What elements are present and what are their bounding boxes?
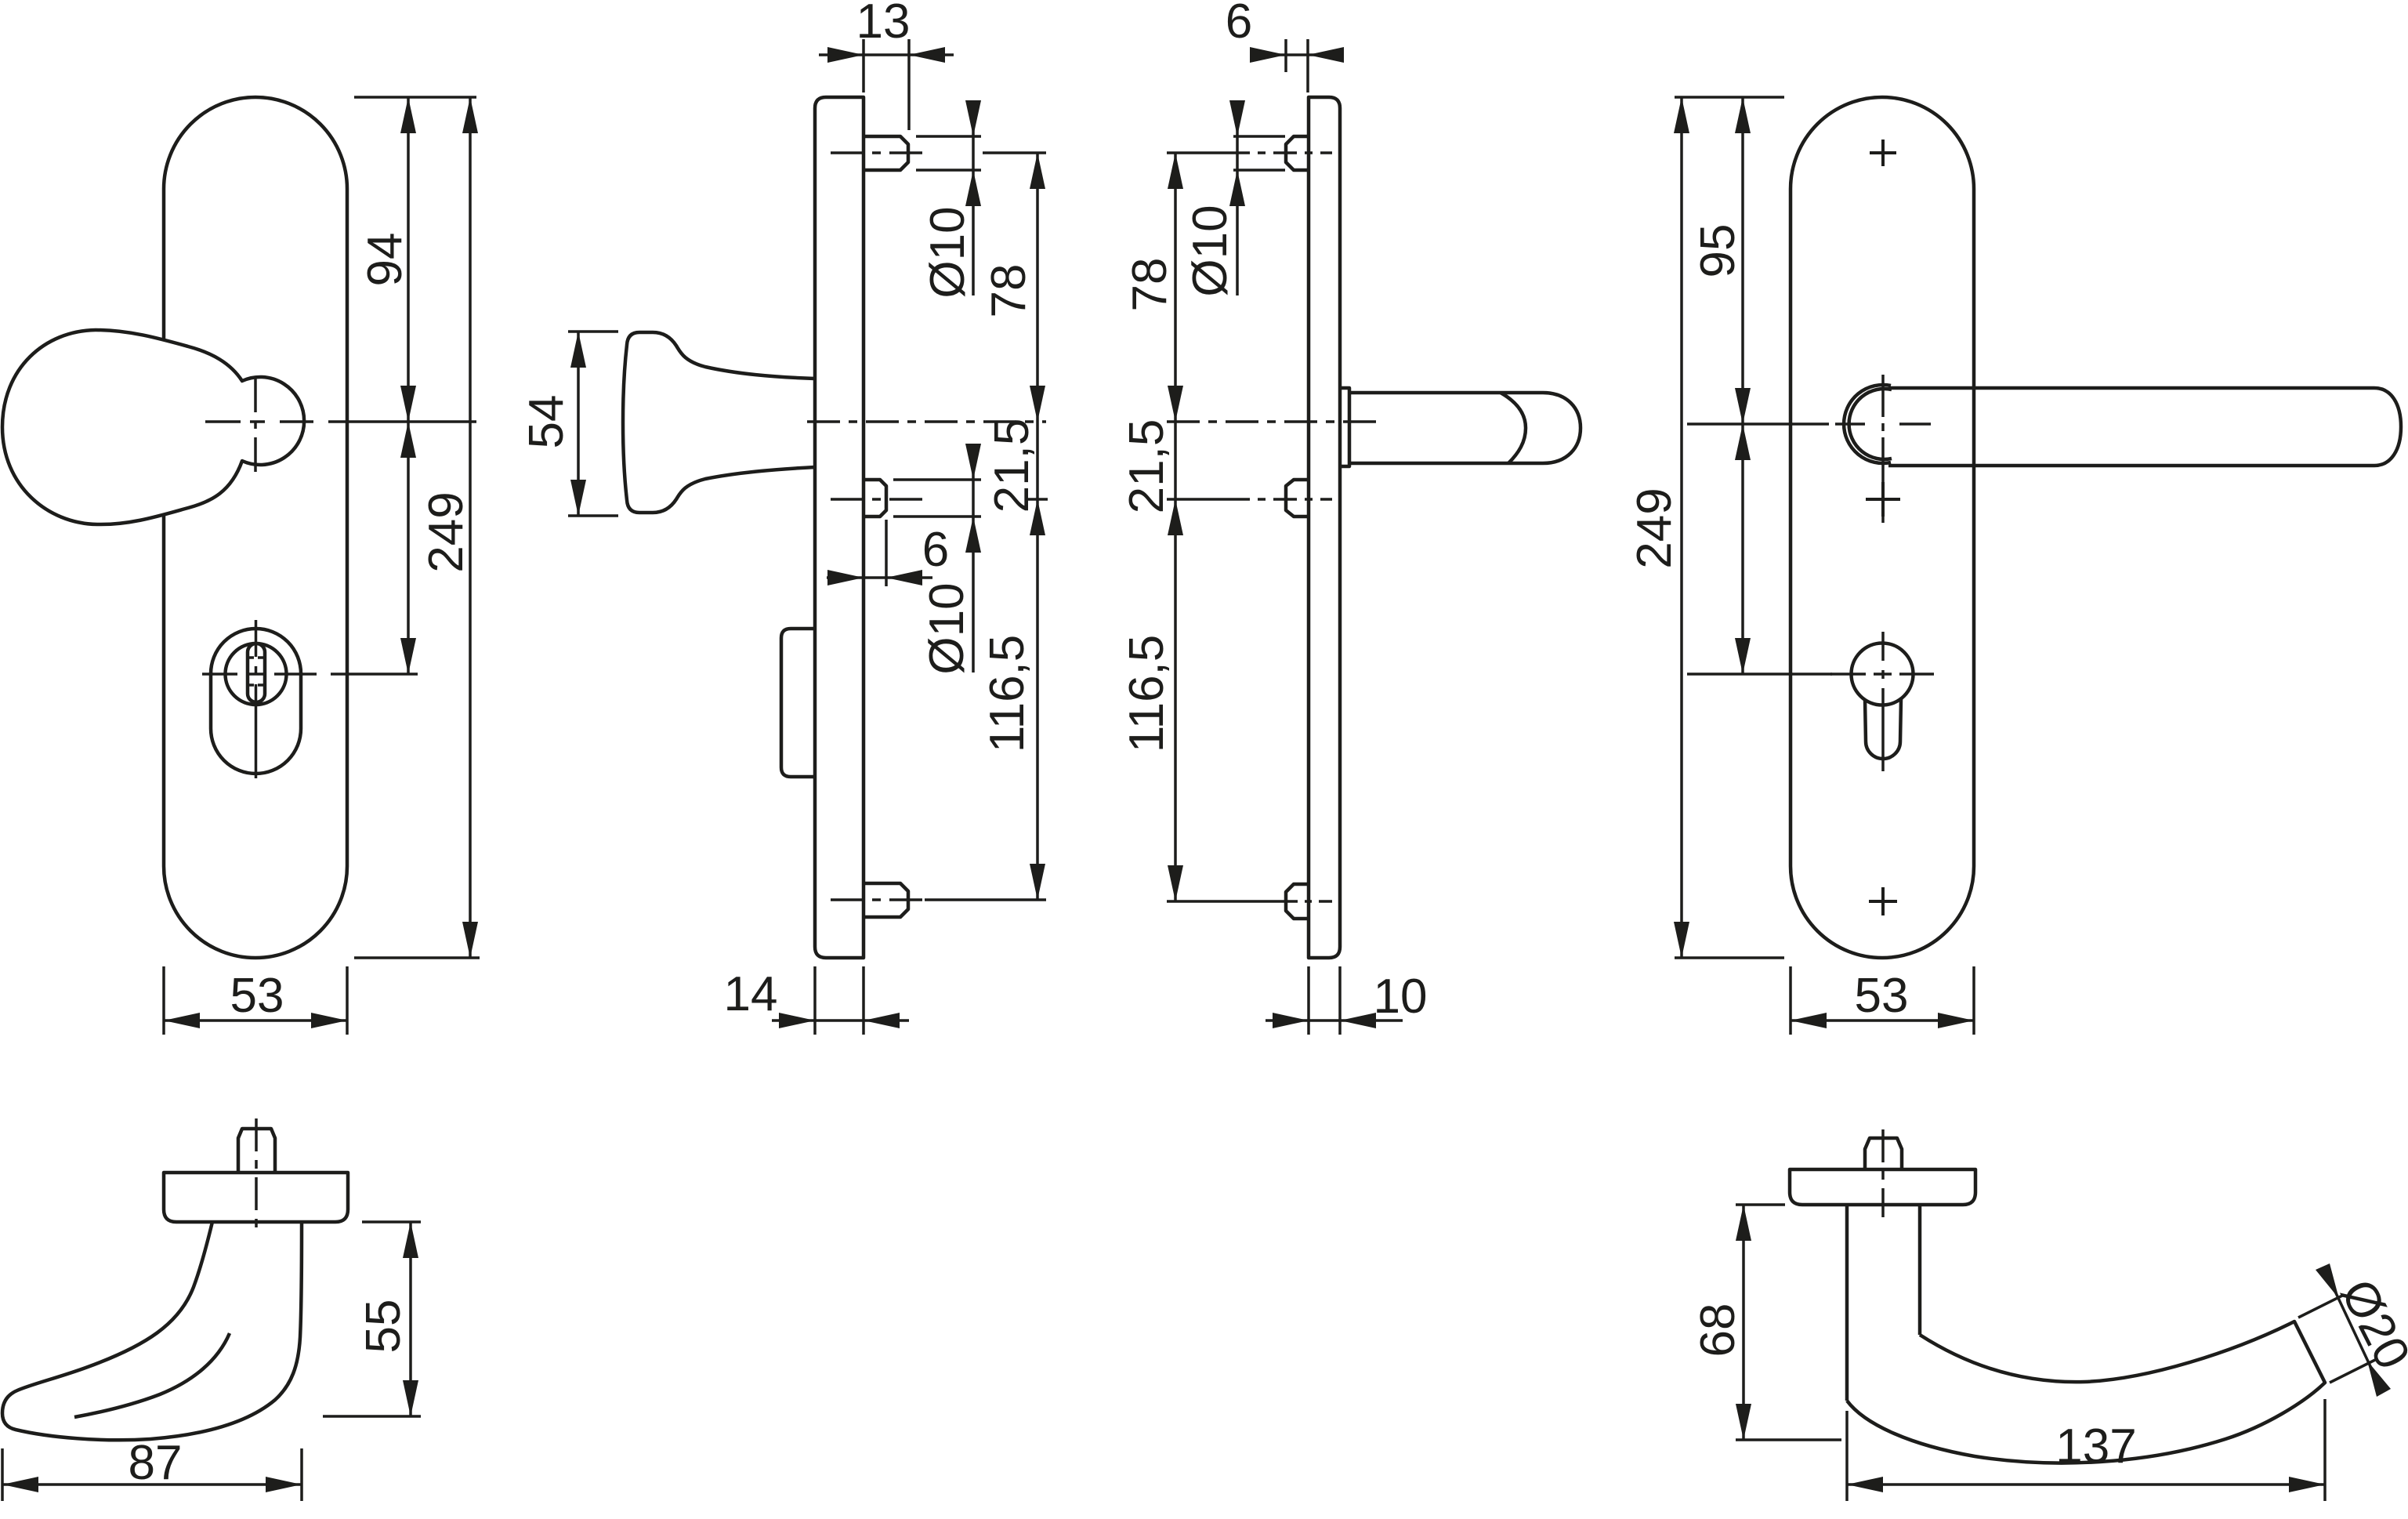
- svg-text:78: 78: [982, 264, 1036, 318]
- svg-text:53: 53: [230, 969, 284, 1023]
- svg-text:53: 53: [1855, 969, 1909, 1023]
- svg-text:6: 6: [922, 523, 949, 577]
- svg-text:Ø10: Ø10: [921, 206, 975, 298]
- svg-text:87: 87: [129, 1436, 183, 1490]
- svg-text:Ø10: Ø10: [920, 582, 974, 674]
- svg-text:13: 13: [856, 0, 911, 49]
- svg-text:10: 10: [1374, 970, 1428, 1024]
- svg-text:95: 95: [1691, 224, 1745, 278]
- svg-text:Ø20: Ø20: [2330, 1271, 2408, 1378]
- svg-text:Ø10: Ø10: [1183, 205, 1237, 296]
- svg-text:21,5: 21,5: [985, 419, 1039, 513]
- svg-text:249: 249: [419, 491, 473, 572]
- svg-text:68: 68: [1691, 1303, 1745, 1358]
- svg-text:137: 137: [2055, 1419, 2136, 1474]
- svg-text:78: 78: [1123, 258, 1177, 312]
- svg-text:94: 94: [358, 233, 412, 287]
- svg-text:14: 14: [724, 967, 778, 1021]
- svg-text:6: 6: [1226, 0, 1252, 49]
- svg-text:54: 54: [520, 395, 574, 449]
- svg-text:21,5: 21,5: [1120, 419, 1174, 514]
- svg-text:116,5: 116,5: [980, 635, 1034, 753]
- svg-text:116,5: 116,5: [1120, 635, 1174, 753]
- svg-text:55: 55: [357, 1300, 411, 1354]
- svg-text:249: 249: [1628, 488, 1682, 568]
